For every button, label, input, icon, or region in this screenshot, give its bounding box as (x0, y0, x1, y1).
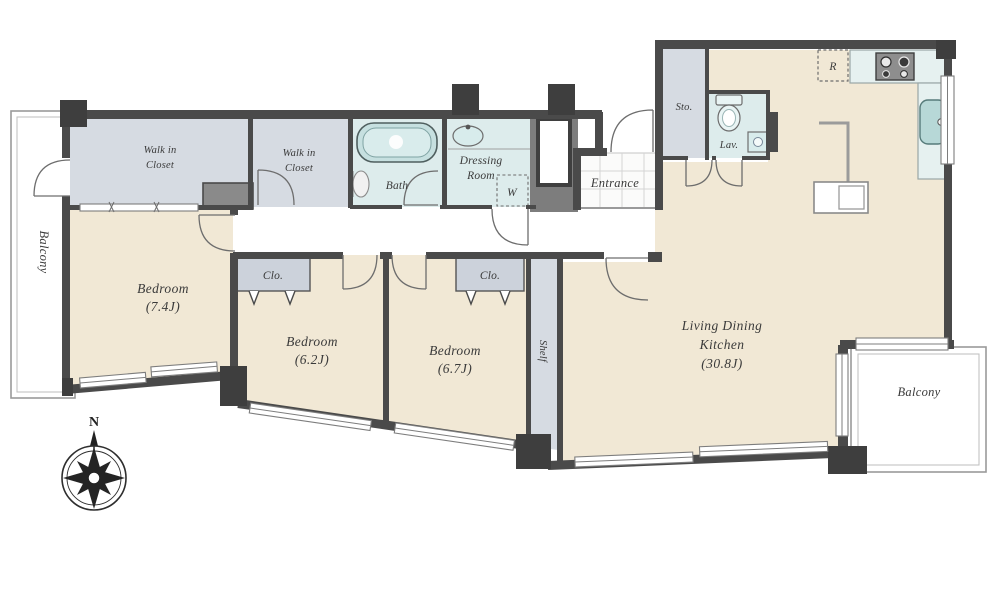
walk-in-closet-1-label-1: Walk in (144, 145, 177, 156)
stove-icon (876, 53, 914, 80)
ldk-balcony-window-south (856, 338, 948, 350)
bathtub-icon (357, 123, 437, 162)
balcony-door-opening (62, 158, 70, 196)
bedroom-1-name: Bedroom (137, 281, 189, 296)
bedroom-2-size: (6.2J) (295, 352, 329, 367)
dressing-room-label-1: Dressing (459, 155, 503, 167)
bath-label: Bath (386, 180, 409, 192)
bedroom-3-size: (6.7J) (438, 361, 472, 376)
walk-in-closet-1-label-2: Closet (146, 160, 175, 171)
washer-label: W (507, 187, 518, 199)
storage-label: Sto. (676, 102, 693, 113)
floor-plan: Balcony Balcony (0, 0, 990, 602)
closet-1-label: Clo. (263, 270, 283, 282)
bedroom-2-name: Bedroom (286, 334, 338, 349)
utility-shaft (538, 119, 570, 185)
bedroom-1-size: (7.4J) (146, 299, 180, 314)
dressing-room-label-2: Room (466, 170, 495, 182)
toilet-icon (716, 95, 742, 131)
lavatory-label: Lav. (719, 140, 738, 151)
kitchen-window (941, 76, 954, 164)
walk-in-closet-2-label-1: Walk in (283, 148, 316, 159)
refrigerator-label: R (828, 61, 836, 73)
floor-plan-svg: Balcony Balcony (0, 0, 990, 602)
dressing-room-door-arc (492, 209, 528, 245)
ldk-label-2: Kitchen (699, 337, 745, 352)
closet-2-label: Clo. (480, 270, 500, 282)
entrance-label: Entrance (590, 176, 639, 190)
bath-faucet-icon (353, 171, 369, 197)
wash-basin-icon (748, 132, 768, 152)
ldk-balcony-door-east (836, 354, 848, 436)
balcony-right-outline (851, 347, 986, 472)
sliding-door (80, 202, 198, 212)
balcony-left-label: Balcony (37, 230, 51, 273)
compass-needle (90, 430, 98, 446)
washing-machine-area: W (497, 175, 528, 206)
ldk-size: (30.8J) (701, 356, 743, 371)
front-door-arc (611, 110, 653, 152)
ldk-label-1: Living Dining (681, 318, 763, 333)
compass-north-label: N (89, 415, 99, 430)
balcony-right: Balcony (851, 347, 986, 472)
shelf-label: Shelf (537, 340, 548, 364)
walk-in-closet-2-label-2: Closet (285, 163, 314, 174)
balcony-right-label: Balcony (897, 385, 940, 399)
compass-rose-icon: N (62, 415, 126, 510)
bedroom-3-name: Bedroom (429, 343, 481, 358)
compass-hub (87, 471, 101, 485)
